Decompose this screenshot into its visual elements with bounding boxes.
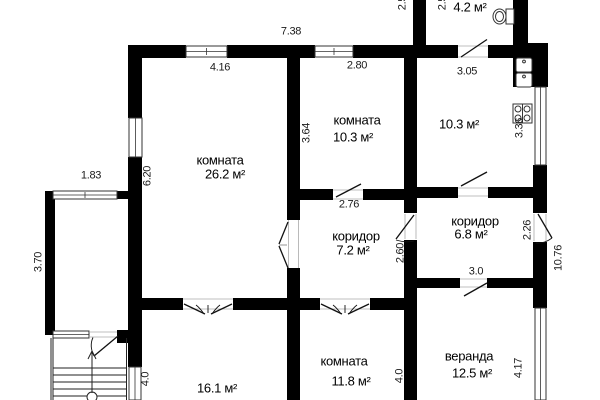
dim-label: 2.80	[347, 61, 367, 72]
door-annex	[94, 336, 118, 356]
dim-label: 10.76	[554, 245, 565, 271]
walls	[45, 0, 548, 400]
room-area: 7.2 м²	[336, 244, 369, 257]
room-area: 6.8 м²	[454, 228, 487, 241]
stairs-icon	[51, 338, 127, 400]
room-area: 12.5 м²	[452, 367, 492, 380]
dim-label: 6.20	[143, 166, 154, 186]
door-veranda	[464, 283, 487, 296]
dim-label: 2.5	[438, 0, 449, 10]
room-area: 4.2 м²	[453, 1, 486, 14]
room-label: комната	[333, 114, 380, 127]
room-area: 16.1 м²	[197, 382, 237, 395]
dim-label: 3.36	[515, 118, 526, 138]
room-label: коридор	[332, 230, 380, 243]
dim-label: 7.38	[281, 27, 301, 38]
room-area: 10.3 м²	[439, 118, 479, 131]
dim-label: 4.17	[514, 358, 525, 378]
dim-label: 3.70	[34, 252, 45, 272]
dim-label: 3.0	[469, 267, 483, 278]
door-room-10-3	[336, 184, 361, 197]
dim-label: 4.16	[210, 63, 230, 74]
dim-label: 3.64	[302, 123, 313, 143]
room-label: комната	[196, 154, 243, 167]
dim-label: 1.83	[81, 171, 101, 182]
dim-label: 2.26	[523, 220, 534, 240]
door-exterior-right	[538, 214, 552, 238]
floor-plan-drawing	[0, 0, 600, 400]
dim-label: 4.0	[141, 372, 152, 386]
dim-label: 2.60	[396, 243, 407, 263]
door-wc	[461, 40, 487, 58]
dim-label: 2.76	[339, 200, 359, 211]
dim-label: 2.5	[398, 0, 409, 10]
room-area: 11.8 м²	[331, 375, 370, 388]
door-kitchen	[461, 172, 487, 186]
room-label: веранда	[445, 350, 493, 363]
dim-label: 3.05	[457, 67, 477, 78]
floor-plan-canvas: комната 26.2 м² комната 10.3 м² 10.3 м² …	[0, 0, 600, 400]
sink-icon	[516, 58, 532, 87]
room-label: комната	[320, 355, 367, 368]
dim-label: 4.0	[395, 369, 406, 383]
toilet-icon	[493, 9, 514, 24]
room-area: 26.2 м²	[205, 168, 245, 181]
room-area: 10.3 м²	[333, 131, 373, 144]
